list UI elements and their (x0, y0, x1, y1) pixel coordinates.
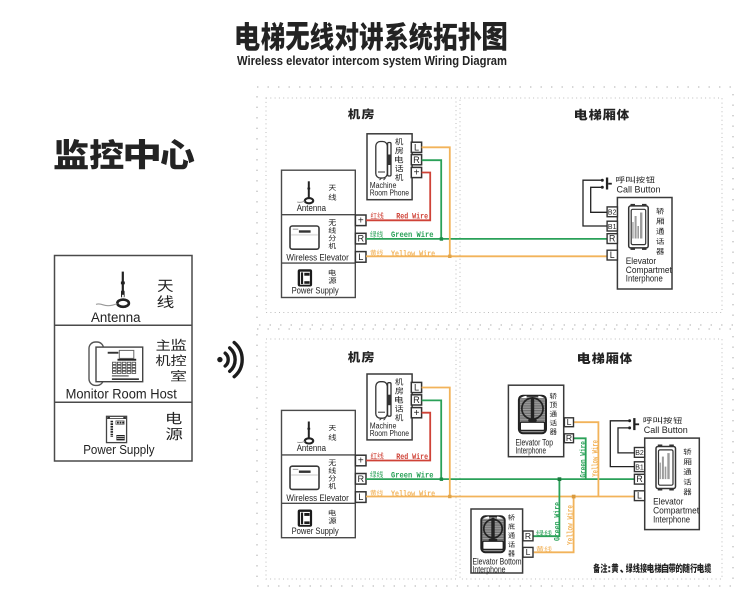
svg-text:L: L (610, 250, 615, 260)
svg-text:Wireless Elevator: Wireless Elevator (286, 253, 349, 264)
svg-text:Yellow Wire: Yellow Wire (566, 505, 575, 545)
svg-text:R: R (566, 433, 572, 443)
svg-text:Antenna: Antenna (297, 203, 326, 213)
svg-text:+: + (414, 168, 420, 179)
svg-text:Call Button: Call Button (617, 185, 661, 195)
svg-text:R: R (413, 155, 420, 165)
svg-text:R: R (609, 233, 615, 243)
svg-text:Power Supply: Power Supply (292, 286, 340, 296)
svg-text:L: L (526, 547, 531, 557)
svg-text:R: R (525, 531, 531, 541)
svg-text:Wireless elevator intercom sys: Wireless elevator intercom system Wiring… (237, 53, 507, 68)
svg-text:Antenna: Antenna (91, 310, 141, 325)
svg-text:Room Phone: Room Phone (370, 189, 409, 198)
svg-text:Interphone: Interphone (473, 564, 506, 574)
svg-text:L: L (358, 252, 363, 262)
svg-text:Yellow Wire: Yellow Wire (391, 249, 435, 259)
svg-text:R: R (357, 234, 364, 244)
svg-text:L: L (414, 142, 419, 152)
svg-text:Power Supply: Power Supply (83, 443, 155, 457)
svg-text:B2: B2 (608, 210, 617, 217)
svg-text:B1: B1 (608, 224, 617, 231)
svg-text:L: L (567, 417, 572, 427)
svg-text:Interphone: Interphone (516, 446, 547, 456)
svg-text:Interphone: Interphone (626, 274, 663, 284)
svg-text:+: + (358, 215, 364, 226)
svg-text:Green Wire: Green Wire (553, 502, 562, 541)
svg-text:Green Wire: Green Wire (579, 441, 588, 478)
svg-text:Monitor Room Host: Monitor Room Host (66, 387, 177, 402)
svg-text:Yellow Wire: Yellow Wire (591, 440, 600, 477)
